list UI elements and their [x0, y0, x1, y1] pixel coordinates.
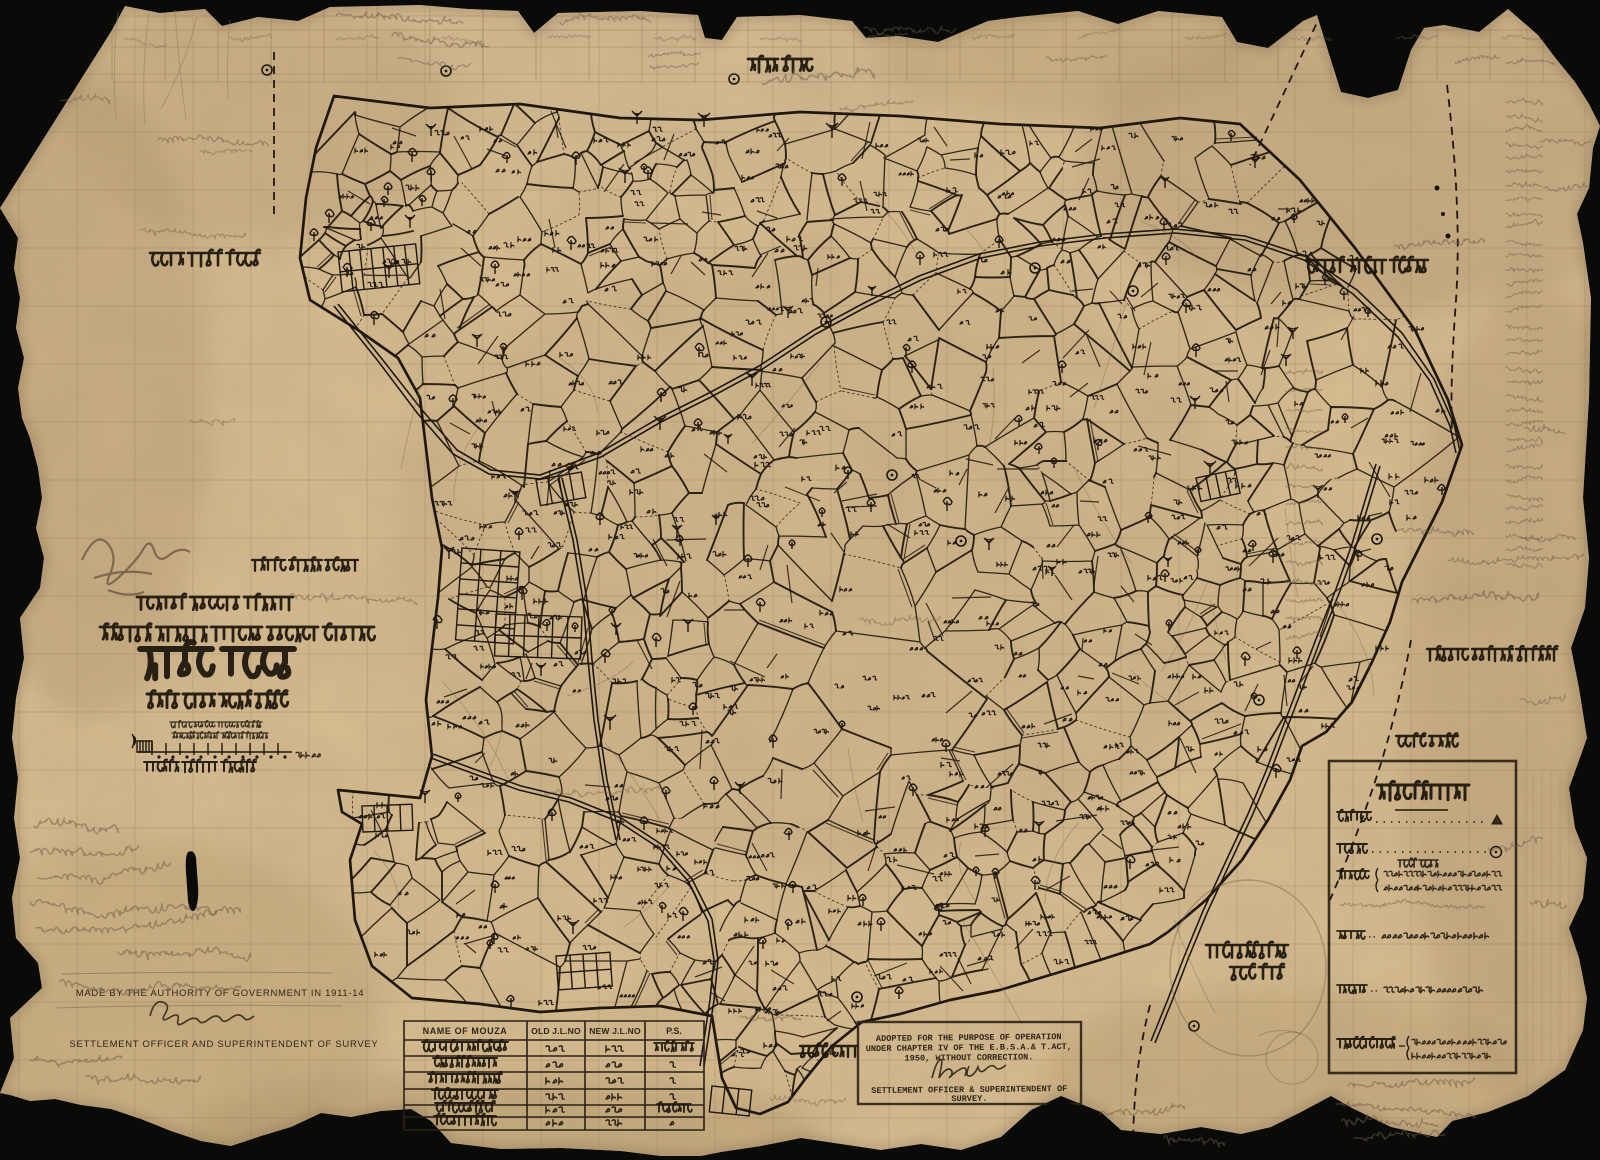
svg-text:NAME OF MOUZA: NAME OF MOUZA — [423, 1026, 508, 1036]
svg-text:SETTLEMENT OFFICER AND SUPERIN: SETTLEMENT OFFICER AND SUPERINTENDENT OF… — [70, 1039, 379, 1050]
svg-text:1950, WITHOUT CORRECTION.: 1950, WITHOUT CORRECTION. — [904, 1052, 1033, 1063]
svg-text:OLD J.L.NO: OLD J.L.NO — [531, 1026, 581, 1036]
svg-text:SURVEY.: SURVEY. — [951, 1094, 987, 1104]
svg-text:MADE BY THE AUTHORITY OF GOVER: MADE BY THE AUTHORITY OF GOVERNMENT IN 1… — [76, 988, 364, 999]
svg-text:NEW J.L.NO: NEW J.L.NO — [589, 1026, 641, 1036]
svg-text:P.S.: P.S. — [666, 1026, 682, 1036]
